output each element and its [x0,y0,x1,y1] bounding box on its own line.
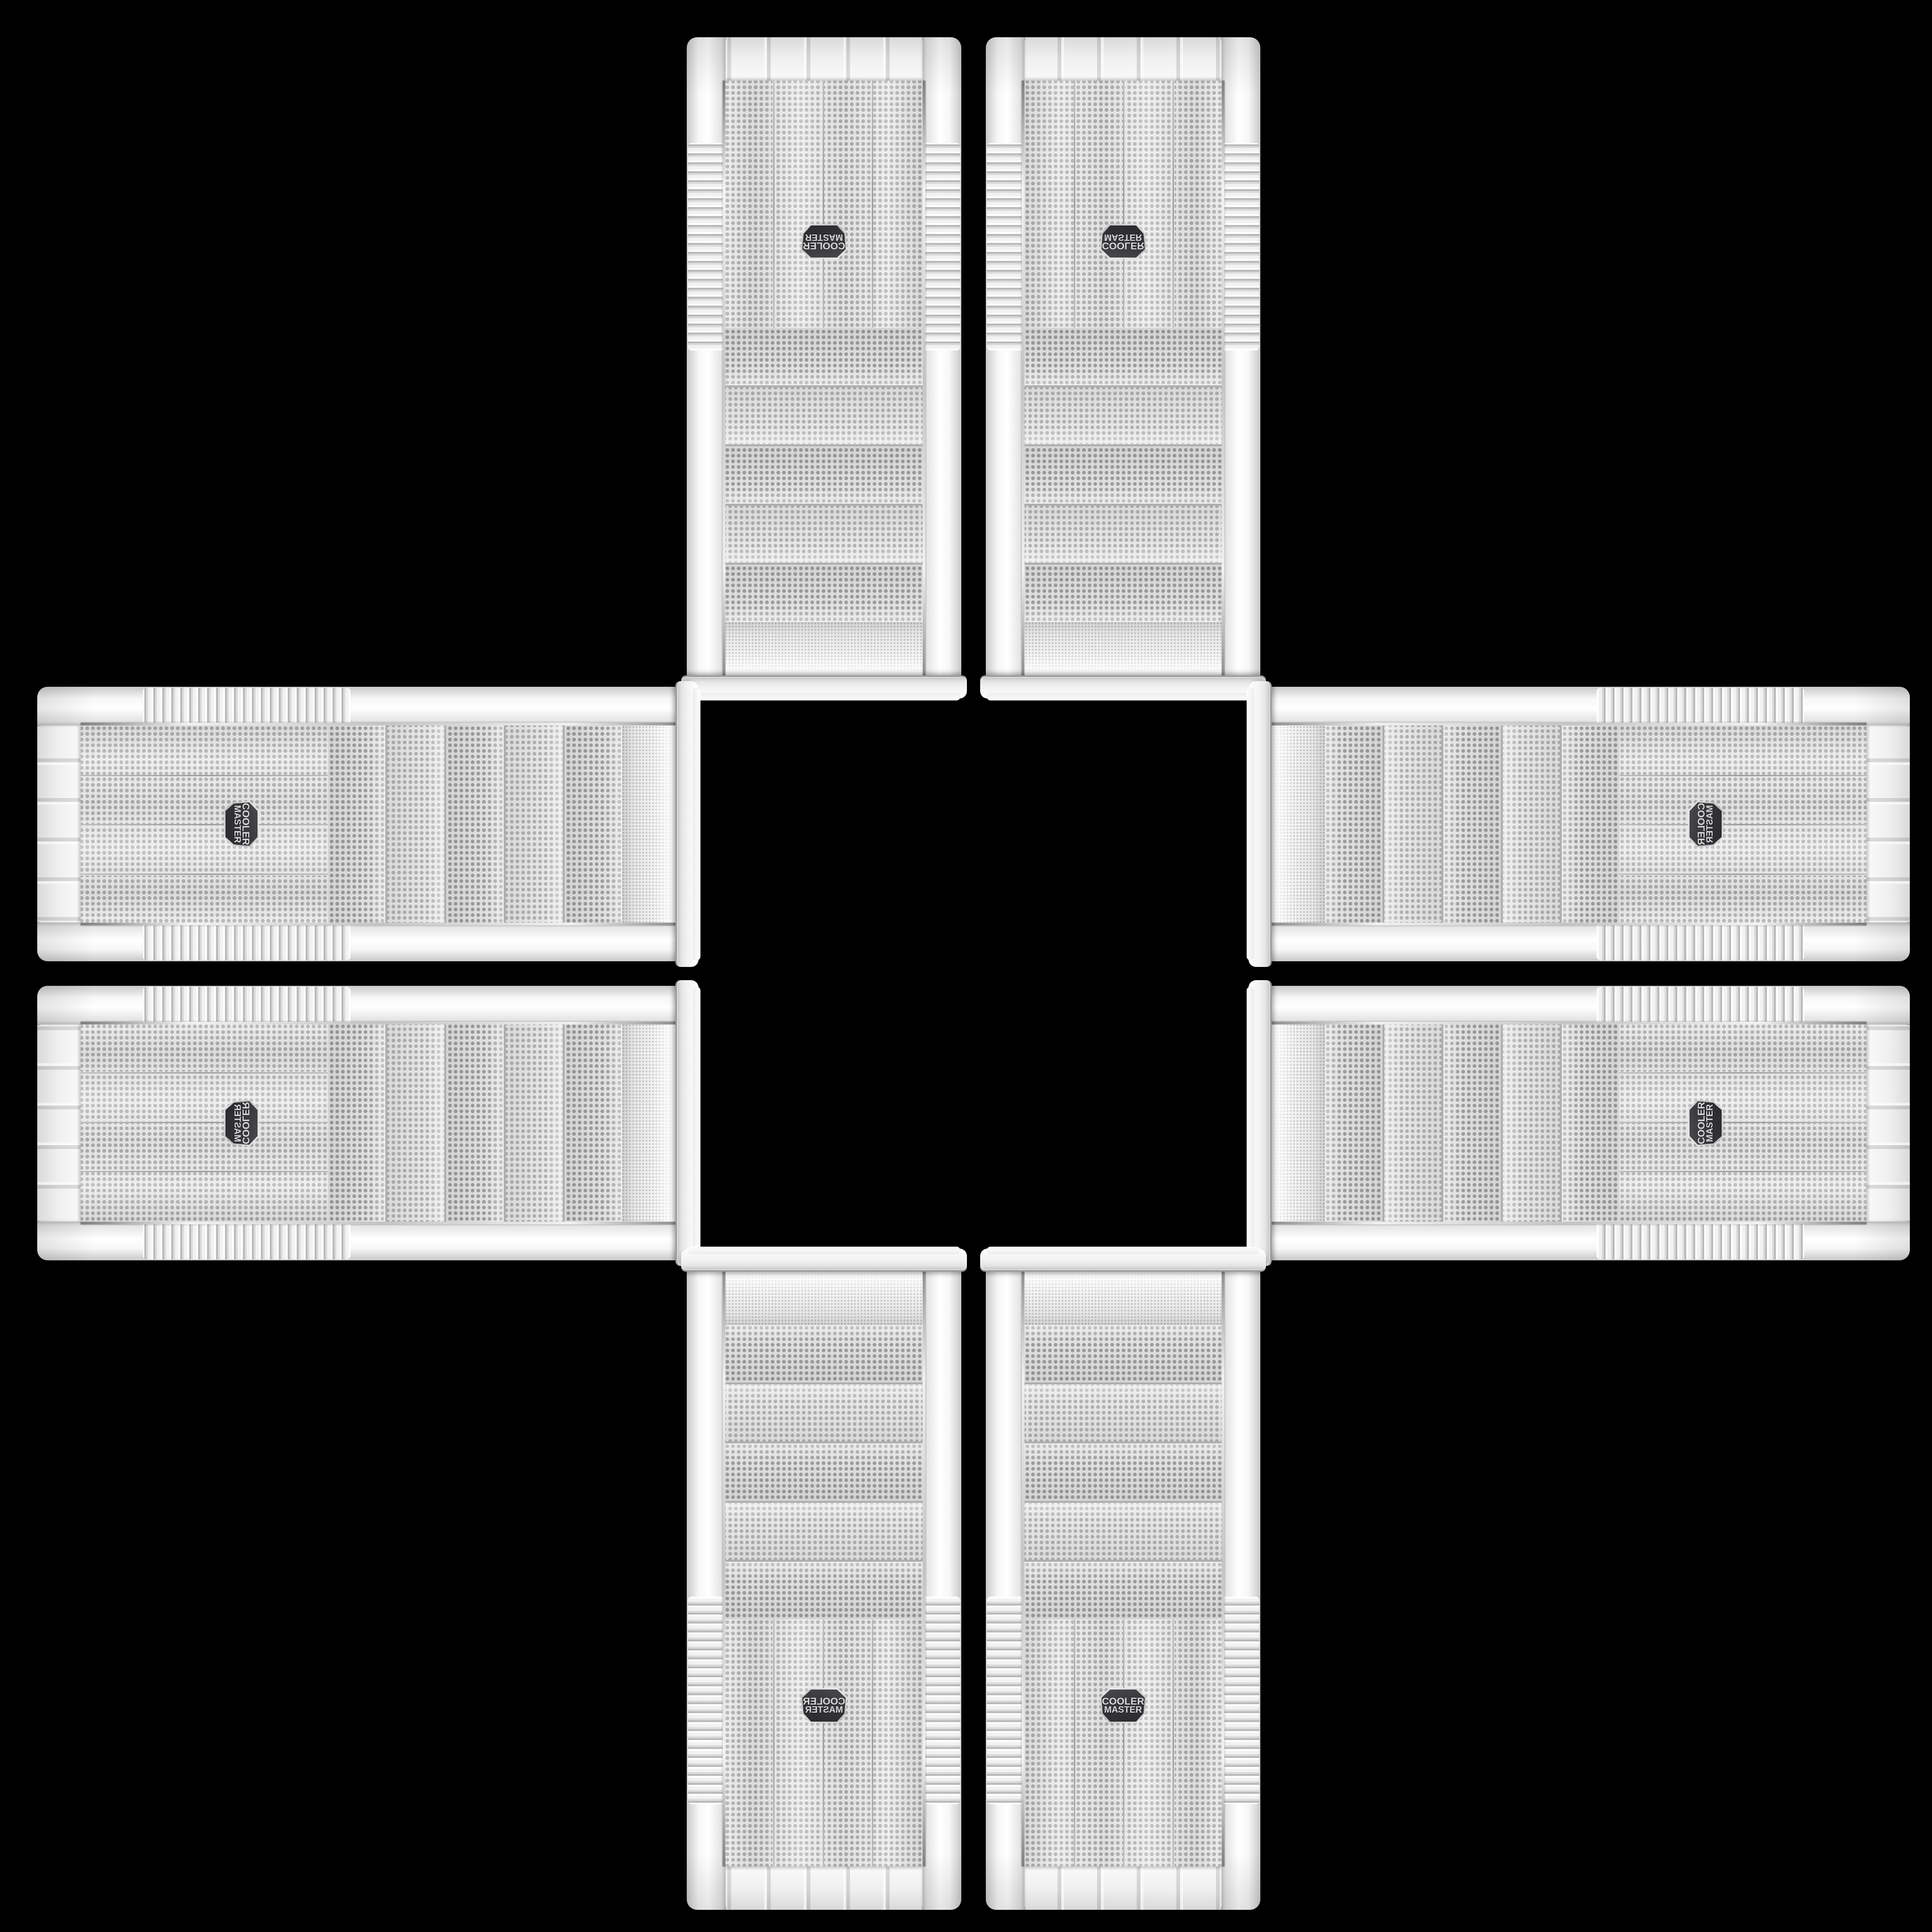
mesh-seam [1123,81,1124,328]
side-column-right [1266,922,1910,961]
case-slot-top-right: COOLER MASTER [986,37,1260,699]
drive-bay-cover [1562,1024,1619,1222]
mesh-seam [823,81,824,328]
drive-bay-cover [1384,1024,1442,1222]
drive-bay-cover [328,725,385,923]
front-mesh-panel: COOLER MASTER [1024,1269,1222,1866]
drive-bay-cover [1024,1503,1222,1560]
pc-case: COOLER MASTER [37,687,699,961]
side-column-right [1221,37,1260,681]
badge-text-line2: MASTER [1104,233,1142,241]
side-column-left [986,1266,1025,1910]
case-slot-top-left: COOLER MASTER [687,37,961,699]
side-column-ribs [1222,1597,1259,1804]
top-cap [1249,980,1270,1266]
main-mesh-grille: COOLER MASTER [725,81,923,328]
top-mesh-bulge [1269,1024,1325,1222]
side-column-right [1221,1266,1260,1910]
mesh-seam [1619,775,1866,776]
cooler-master-badge-face: COOLER MASTER [225,1101,258,1145]
cooler-master-badge: COOLER MASTER [224,1100,259,1146]
drive-bay-area [1024,1325,1222,1619]
side-column-left [1266,687,1910,726]
mesh-seam [1173,81,1174,328]
drive-bay-cover [1024,446,1222,504]
side-column-right [687,1266,726,1910]
side-column-foot [986,37,1025,94]
mesh-seam [872,1619,874,1866]
bottom-bumper [725,37,923,81]
drive-bay-cover [1503,725,1560,923]
mesh-seam [1619,1122,1866,1123]
drive-bay-area [328,725,622,923]
drive-bay-cover [725,1503,923,1560]
drive-bay-cover [1443,725,1501,923]
drive-bay-cover [725,328,923,385]
cooler-master-badge: COOLER MASTER [224,801,259,847]
case-slot-bottom-right: COOLER MASTER [986,1249,1260,1910]
pc-case: COOLER MASTER [687,37,961,699]
top-cap-step [1265,684,1269,964]
case-slot-right-upper: COOLER MASTER [1249,687,1910,961]
side-column-ribs [1222,143,1259,350]
drive-bay-cover [328,1024,385,1222]
top-cap-step [684,1265,964,1269]
drive-bay-cover [1562,725,1619,923]
main-mesh-grille: COOLER MASTER [81,1024,328,1222]
side-column-ribs [143,688,350,725]
mesh-seam [1074,1619,1075,1866]
front-mesh-panel: COOLER MASTER [1269,725,1866,923]
side-column-ribs [1597,1222,1804,1259]
side-column-ribs [143,987,350,1024]
side-column-foot [37,922,94,961]
drive-bay-cover [387,725,445,923]
mesh-seam [1074,81,1075,328]
bottom-bumper [37,725,81,923]
drive-bay-cover [1503,1024,1560,1222]
main-mesh-grille: COOLER MASTER [81,725,328,923]
mesh-seam [81,1171,328,1173]
side-column-foot [986,1853,1025,1910]
mesh-seam [1123,1619,1124,1866]
badge-text-line2: MASTER [1706,1104,1714,1142]
side-column-foot [1853,922,1910,961]
main-mesh-grille: COOLER MASTER [1024,81,1222,328]
badge-text-line2: MASTER [1706,805,1714,843]
case-slot-left-upper: COOLER MASTER [37,687,699,961]
mesh-seam [81,1073,328,1074]
badge-text-line2: MASTER [233,805,241,843]
side-column-left [922,37,961,681]
side-column-left [922,1266,961,1910]
drive-bay-cover [725,387,923,445]
front-mesh-panel: COOLER MASTER [81,725,678,923]
cooler-master-badge: COOLER MASTER [1100,1688,1146,1723]
drive-bay-cover [446,725,504,923]
mesh-seam [1619,824,1866,825]
cooler-master-badge-face: COOLER MASTER [802,1690,846,1722]
pc-case: COOLER MASTER [687,1249,961,1910]
side-column-foot [687,37,726,94]
pc-case: COOLER MASTER [37,986,699,1260]
side-column-foot [37,687,94,726]
drive-bay-cover [387,1024,445,1222]
pc-case: COOLER MASTER [1249,986,1910,1260]
cooler-master-badge: COOLER MASTER [801,224,847,259]
cooler-master-badge-face: COOLER MASTER [1101,1690,1145,1722]
side-column-ribs [987,1597,1024,1804]
bottom-bumper [1024,37,1222,81]
side-column-foot [37,1221,94,1260]
side-column-right [1266,986,1910,1025]
drive-bay-cover [1024,328,1222,385]
drive-bay-cover [1325,1024,1382,1222]
case-slot-left-lower: COOLER MASTER [37,986,699,1260]
mesh-seam [774,81,775,328]
drive-bay-area [1325,725,1619,923]
side-column-left [986,37,1025,681]
drive-bay-cover [446,1024,504,1222]
drive-bay-cover [725,1325,923,1382]
bottom-bumper [1866,725,1910,923]
drive-bay-cover [1384,725,1442,923]
side-column-foot [922,37,961,94]
drive-bay-cover [1024,1443,1222,1501]
top-mesh-bulge [1024,622,1222,678]
top-mesh-bulge [725,622,923,678]
side-column-foot [1853,1221,1910,1260]
cooler-master-badge: COOLER MASTER [801,1688,847,1723]
top-cap [1249,681,1270,967]
main-mesh-grille: COOLER MASTER [1619,1024,1866,1222]
case-slot-right-lower: COOLER MASTER [1249,986,1910,1260]
side-column-ribs [1597,987,1804,1024]
side-column-right [687,37,726,681]
top-mesh-bulge [622,1024,678,1222]
side-column-left [1266,1221,1910,1260]
side-column-left [37,1221,681,1260]
mesh-seam [872,81,874,328]
drive-bay-cover [725,1443,923,1501]
front-mesh-panel: COOLER MASTER [1269,1024,1866,1222]
pc-case: COOLER MASTER [1249,687,1910,961]
drive-bay-cover [725,565,923,622]
bottom-bumper [725,1866,923,1910]
mesh-seam [1173,1619,1174,1866]
drive-bay-cover [725,1562,923,1619]
cooler-master-badge-face: COOLER MASTER [1690,802,1722,846]
drive-bay-area [1024,328,1222,622]
front-mesh-panel: COOLER MASTER [1024,81,1222,678]
bottom-bumper [1866,1024,1910,1222]
side-column-right [37,986,681,1025]
top-mesh-bulge [1024,1269,1222,1325]
side-column-ribs [143,1222,350,1259]
drive-bay-cover [506,725,563,923]
drive-bay-cover [565,725,622,923]
top-cap [980,677,1266,699]
drive-bay-cover [565,1024,622,1222]
top-mesh-bulge [725,1269,923,1325]
cooler-master-badge-face: COOLER MASTER [1101,225,1145,258]
mesh-seam [81,824,328,825]
bottom-bumper [1024,1866,1222,1910]
side-column-ribs [923,1597,960,1804]
side-column-ribs [143,923,350,960]
side-column-right [37,922,681,961]
cooler-master-badge: COOLER MASTER [1688,801,1723,847]
badge-text-line2: MASTER [1104,1706,1142,1714]
top-cap-step [983,1265,1263,1269]
drive-bay-cover [1024,1562,1222,1619]
mesh-seam [823,1619,824,1866]
drive-bay-cover [725,506,923,563]
badge-text-line1: COOLER [803,241,845,250]
side-column-left [37,687,681,726]
top-cap [677,681,699,967]
drive-bay-area [725,1325,923,1619]
main-mesh-grille: COOLER MASTER [725,1619,923,1866]
badge-text-line2: MASTER [233,1104,241,1142]
top-cap-step [678,684,682,964]
side-column-ribs [1597,688,1804,725]
badge-text-line2: MASTER [805,1706,843,1714]
drive-bay-cover [1024,387,1222,445]
badge-text-line1: COOLER [1102,241,1144,250]
drive-bay-cover [1024,1325,1222,1382]
side-column-ribs [688,1597,725,1804]
badge-text-line1: COOLER [241,1102,250,1144]
front-mesh-panel: COOLER MASTER [81,1024,678,1222]
side-column-foot [37,986,94,1025]
side-column-foot [1853,986,1910,1025]
side-column-ribs [688,143,725,350]
drive-bay-cover [1024,565,1222,622]
badge-text-line2: MASTER [805,233,843,241]
drive-bay-cover [725,446,923,504]
cooler-master-badge: COOLER MASTER [1100,224,1146,259]
side-column-foot [1221,1853,1260,1910]
drive-bay-cover [506,1024,563,1222]
side-column-ribs [1597,923,1804,960]
cooler-master-badge-face: COOLER MASTER [225,802,258,846]
cooler-master-badge-face: COOLER MASTER [802,225,846,258]
front-mesh-panel: COOLER MASTER [725,81,923,678]
drive-bay-cover [1443,1024,1501,1222]
side-column-foot [1221,37,1260,94]
mesh-seam [774,1619,775,1866]
mesh-seam [81,775,328,776]
mesh-seam [1619,1073,1866,1074]
top-cap-step [1265,983,1269,1263]
product-collage: COOLER MASTER [0,0,1932,1932]
top-cap [980,1249,1266,1270]
top-cap [677,980,699,1266]
drive-bay-area [328,1024,622,1222]
drive-bay-cover [1024,1384,1222,1442]
drive-bay-area [725,328,923,622]
top-cap [681,1249,967,1270]
top-mesh-bulge [1269,725,1325,923]
main-mesh-grille: COOLER MASTER [1024,1619,1222,1866]
bottom-bumper [37,1024,81,1222]
side-column-ribs [987,143,1024,350]
badge-text-line1: COOLER [241,803,250,845]
top-cap [681,677,967,699]
top-cap-step [678,983,682,1263]
mesh-seam [1619,874,1866,875]
top-mesh-bulge [622,725,678,923]
pc-case: COOLER MASTER [986,37,1260,699]
mesh-seam [1619,1171,1866,1173]
cooler-master-badge-face: COOLER MASTER [1690,1101,1722,1145]
main-mesh-grille: COOLER MASTER [1619,725,1866,923]
mesh-seam [81,1122,328,1123]
pc-case: COOLER MASTER [986,1249,1260,1910]
drive-bay-area [1325,1024,1619,1222]
side-column-ribs [923,143,960,350]
drive-bay-cover [725,1384,923,1442]
top-cap-step [983,678,1263,682]
drive-bay-cover [1024,506,1222,563]
cooler-master-badge: COOLER MASTER [1688,1100,1723,1146]
front-mesh-panel: COOLER MASTER [725,1269,923,1866]
mesh-seam [81,874,328,875]
side-column-foot [687,1853,726,1910]
case-slot-bottom-left: COOLER MASTER [687,1249,961,1910]
side-column-foot [922,1853,961,1910]
drive-bay-cover [1325,725,1382,923]
top-cap-step [684,678,964,682]
side-column-foot [1853,687,1910,726]
